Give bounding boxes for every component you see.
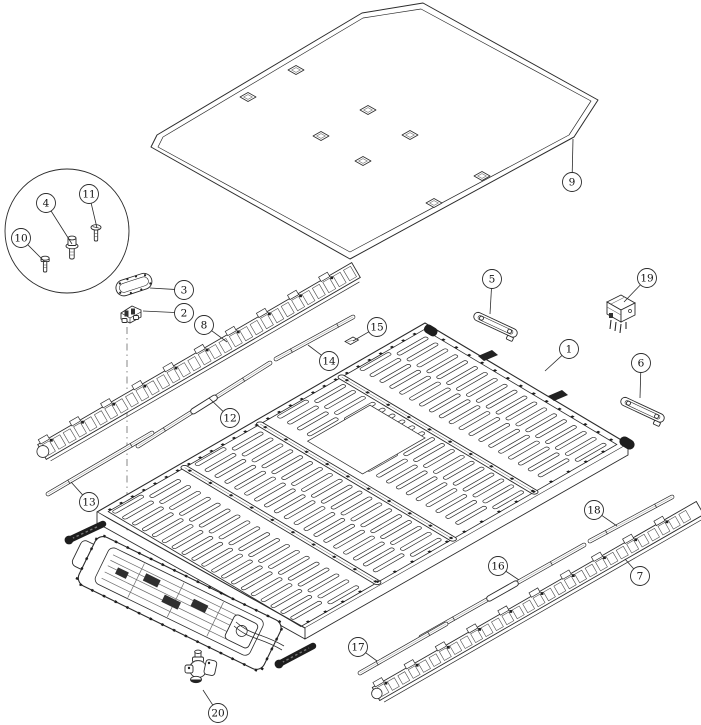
callout-leader-line [545,355,562,371]
cover-hole [474,172,490,181]
callout-leader-line [353,332,369,341]
cover-hole [240,93,256,102]
callout-14: 14 [308,345,339,371]
diagram-canvas: 1234567891011121314151617181920 [0,0,701,725]
sill-rail-8-rivet [143,385,146,388]
sill-rail-7-rivet [447,646,450,649]
sill-rail-8-rivet [237,331,240,334]
sill-rail-7-rivet [478,628,481,631]
callout-number: 17 [351,642,364,654]
callout-2: 2 [143,304,194,323]
cover-hole [402,131,418,140]
callout-6: 6 [632,354,651,399]
cover-hole-outer [313,132,329,141]
callout-7: 7 [625,559,650,586]
callout-18: 18 [585,501,618,527]
bracket-part-6 [618,396,666,427]
callout-number: 7 [637,571,644,583]
top-cover-inner [158,9,591,252]
callout-number: 11 [82,189,95,201]
cover-hole [288,66,304,75]
callout-number: 19 [640,273,653,285]
callout-leader-line [28,245,45,262]
callout-number: 10 [14,233,27,245]
clip-part-2 [121,306,141,323]
cover-hole-outer [355,157,371,166]
gasket-part-3 [114,271,154,298]
top-cover [151,3,598,259]
cover-hole [426,199,442,208]
sill-rail-7-rivet [665,520,668,523]
callout-1: 1 [545,340,579,372]
callout-number: 1 [566,344,573,356]
sill-rail-8-rivet [206,349,209,352]
callout-number: 18 [587,505,600,517]
callout-number: 13 [82,497,95,509]
callout-number: 15 [370,322,383,334]
callout-12: 12 [209,398,240,428]
callout-19: 19 [624,269,657,303]
callout-leader-line [91,203,97,228]
cover-hole-outer [360,106,376,115]
bolt-10 [41,256,49,272]
callout-9: 9 [563,139,582,192]
callout-leader-line [71,482,83,495]
callout-11: 11 [80,185,99,229]
rod-16-sleeve-body [489,584,515,599]
sill-rail-8-rivet [112,403,115,406]
cover-hole [360,106,376,115]
sill-rail-7-rivet [572,574,575,577]
callout-number: 2 [181,308,188,320]
sill-rail-7-rivet [509,610,512,613]
callout-4: 4 [37,194,73,245]
sill-rail-7-rivet [634,538,637,541]
sill-rail-7-rivet [416,664,419,667]
sill-rail-8-rivet [81,421,84,424]
callout-number: 3 [181,285,188,297]
callout-20: 20 [203,690,228,723]
callout-3: 3 [150,281,194,300]
callout-leader-line [602,515,617,526]
callout-5: 5 [483,270,502,315]
callout-number: 8 [201,320,208,332]
cover-hole [313,132,329,141]
sill-rail-8-rivet [330,276,333,279]
callout-13: 13 [71,482,99,512]
cover-hole-outer [240,93,256,102]
shim-part-15 [345,337,359,345]
sill-rail-7-rivet [385,682,388,685]
valve-part-20 [185,650,217,683]
callout-leader-line [366,653,377,661]
callout-leader-line [143,311,175,313]
screw-11 [91,225,101,241]
connector-part-19 [607,295,635,333]
callout-number: 9 [569,177,576,189]
cover-hole-outer [474,172,490,181]
sill-rail-8-nose [37,446,49,458]
sill-rail-8-rivet [268,312,271,315]
callout-8: 8 [195,316,228,343]
callout-leader-line [625,559,634,569]
cover-vent-holes [240,66,490,208]
callout-15: 15 [353,318,387,342]
callout-leader-line [150,288,175,289]
callout-number: 4 [43,198,50,210]
callout-leader-line [624,285,640,302]
battery-pack-exploded-view: 1234567891011121314151617181920 [0,0,701,725]
sill-rail-8-rivet [299,294,302,297]
callout-leader-line [506,571,519,580]
callout-16: 16 [489,557,520,581]
cover-hole [355,157,371,166]
callout-number: 20 [211,708,224,720]
callout-number: 14 [322,356,336,368]
cover-hole-outer [288,66,304,75]
cover-hole-outer [426,199,442,208]
sill-rail-7-rivet [603,556,606,559]
callout-leader-line [51,211,72,244]
sill-rail-8-rivet [175,367,178,370]
sill-rail-7-rivet [541,592,544,595]
top-cover-outer [151,3,598,259]
sill-rail-7-nose [372,688,383,699]
bracket-part-5 [471,311,519,342]
callout-17: 17 [349,638,378,662]
callout-number: 16 [491,561,505,573]
callout-leader-line [203,690,213,705]
callout-10: 10 [12,229,46,263]
callout-leader-line [490,288,491,314]
connector-pins [610,320,626,333]
callout-leader-line [572,139,573,173]
callout-number: 5 [489,274,496,286]
cover-hole-outer [402,131,418,140]
callout-number: 6 [638,358,645,370]
sill-rail-8-rivet [50,439,53,442]
callout-leader-line [308,345,321,355]
callout-number: 12 [223,413,236,425]
callout-leader-line [640,372,641,398]
bolt-4 [66,236,78,259]
